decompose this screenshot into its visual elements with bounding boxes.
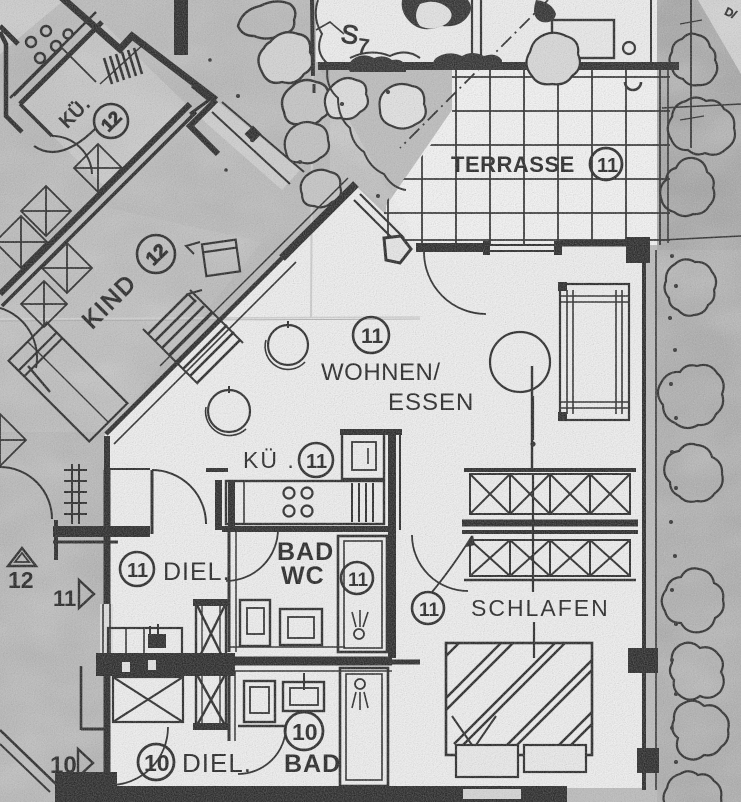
svg-text:ESSEN: ESSEN	[388, 389, 474, 416]
svg-text:11: 11	[361, 325, 384, 348]
svg-text:TERRASSE: TERRASSE	[451, 152, 575, 177]
svg-text:11: 11	[127, 560, 148, 582]
svg-text:11: 11	[348, 570, 369, 591]
svg-text:11: 11	[53, 586, 76, 611]
svg-text:KÜ .: KÜ .	[243, 447, 296, 473]
svg-text:11: 11	[306, 451, 327, 473]
svg-text:11: 11	[419, 600, 440, 621]
svg-text:12: 12	[8, 567, 34, 593]
svg-text:WC: WC	[281, 562, 325, 590]
svg-text:WOHNEN/: WOHNEN/	[321, 359, 441, 386]
svg-text:10: 10	[50, 752, 77, 779]
svg-text:BAD: BAD	[284, 750, 341, 778]
svg-text:10: 10	[144, 750, 170, 776]
svg-text:DIEL.: DIEL.	[163, 558, 231, 586]
svg-text:DIEL.: DIEL.	[182, 748, 252, 778]
svg-text:SCHLAFEN: SCHLAFEN	[471, 595, 610, 621]
svg-text:11: 11	[597, 155, 618, 177]
svg-text:10: 10	[292, 719, 318, 745]
